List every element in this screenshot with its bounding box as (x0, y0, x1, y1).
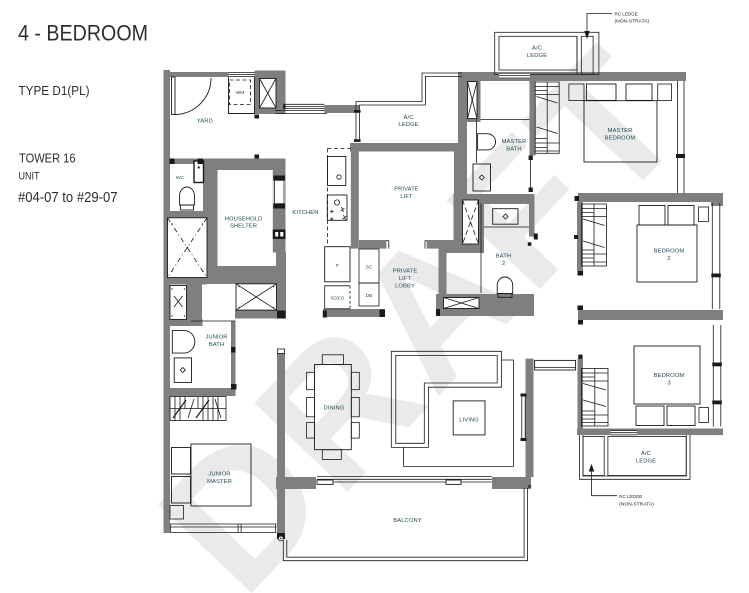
svg-text:A/C: A/C (641, 451, 651, 457)
svg-text:#04-07 to #29-07: #04-07 to #29-07 (18, 190, 118, 206)
svg-text:LIVING: LIVING (459, 418, 479, 424)
svg-text:BALCONY: BALCONY (393, 518, 421, 524)
svg-text:PRIVATE: PRIVATE (394, 187, 419, 193)
svg-text:BEDROOM: BEDROOM (654, 249, 685, 255)
svg-text:BEDROOM: BEDROOM (605, 136, 636, 142)
svg-text:LEDGE: LEDGE (398, 122, 418, 128)
svg-text:SO/CO: SO/CO (331, 296, 345, 301)
svg-text:LIFT: LIFT (400, 194, 413, 200)
svg-text:2: 2 (502, 261, 505, 267)
svg-text:WC: WC (176, 175, 185, 181)
svg-text:UNIT: UNIT (19, 170, 40, 182)
svg-text:LEDGE: LEDGE (527, 53, 547, 59)
svg-text:MASTER: MASTER (608, 128, 633, 134)
svg-text:A/C: A/C (404, 115, 414, 121)
svg-text:YARD: YARD (197, 119, 213, 125)
svg-text:JUNIOR: JUNIOR (208, 472, 230, 478)
svg-text:A/C: A/C (532, 46, 542, 52)
svg-text:BATH: BATH (496, 254, 511, 260)
svg-text:WM: WM (236, 90, 245, 96)
svg-text:DB: DB (366, 293, 373, 299)
svg-text:PRIVATE: PRIVATE (393, 269, 418, 275)
svg-text:3: 3 (667, 381, 670, 387)
svg-text:RC LEDGE: RC LEDGE (619, 494, 643, 500)
svg-text:F: F (336, 263, 339, 269)
svg-text:BATH: BATH (209, 342, 224, 348)
svg-text:(NON-STRATA): (NON-STRATA) (615, 19, 650, 25)
svg-text:JUNIOR: JUNIOR (205, 335, 227, 341)
svg-text:DINING: DINING (324, 406, 345, 412)
svg-text:HOUSEHOLD: HOUSEHOLD (225, 217, 263, 223)
svg-text:TOWER 16: TOWER 16 (19, 150, 76, 165)
svg-text:4 - BEDROOM: 4 - BEDROOM (18, 21, 148, 46)
svg-text:MASTER: MASTER (207, 479, 232, 485)
svg-text:RC LEDGE: RC LEDGE (615, 12, 639, 18)
svg-text:KITCHEN: KITCHEN (292, 210, 318, 216)
svg-text:BATH: BATH (506, 147, 521, 153)
svg-text:SC: SC (366, 265, 373, 271)
svg-text:TYPE D1(PL): TYPE D1(PL) (19, 83, 90, 98)
svg-text:LOBBY: LOBBY (395, 284, 415, 290)
svg-text:SHELTER: SHELTER (230, 224, 257, 230)
svg-text:LEDGE: LEDGE (636, 459, 656, 465)
svg-text:2: 2 (667, 256, 670, 262)
svg-text:BEDROOM: BEDROOM (654, 373, 685, 379)
svg-text:LIFT: LIFT (399, 276, 412, 282)
svg-text:MASTER: MASTER (502, 139, 527, 145)
svg-text:(NON-STRATA): (NON-STRATA) (619, 501, 654, 507)
